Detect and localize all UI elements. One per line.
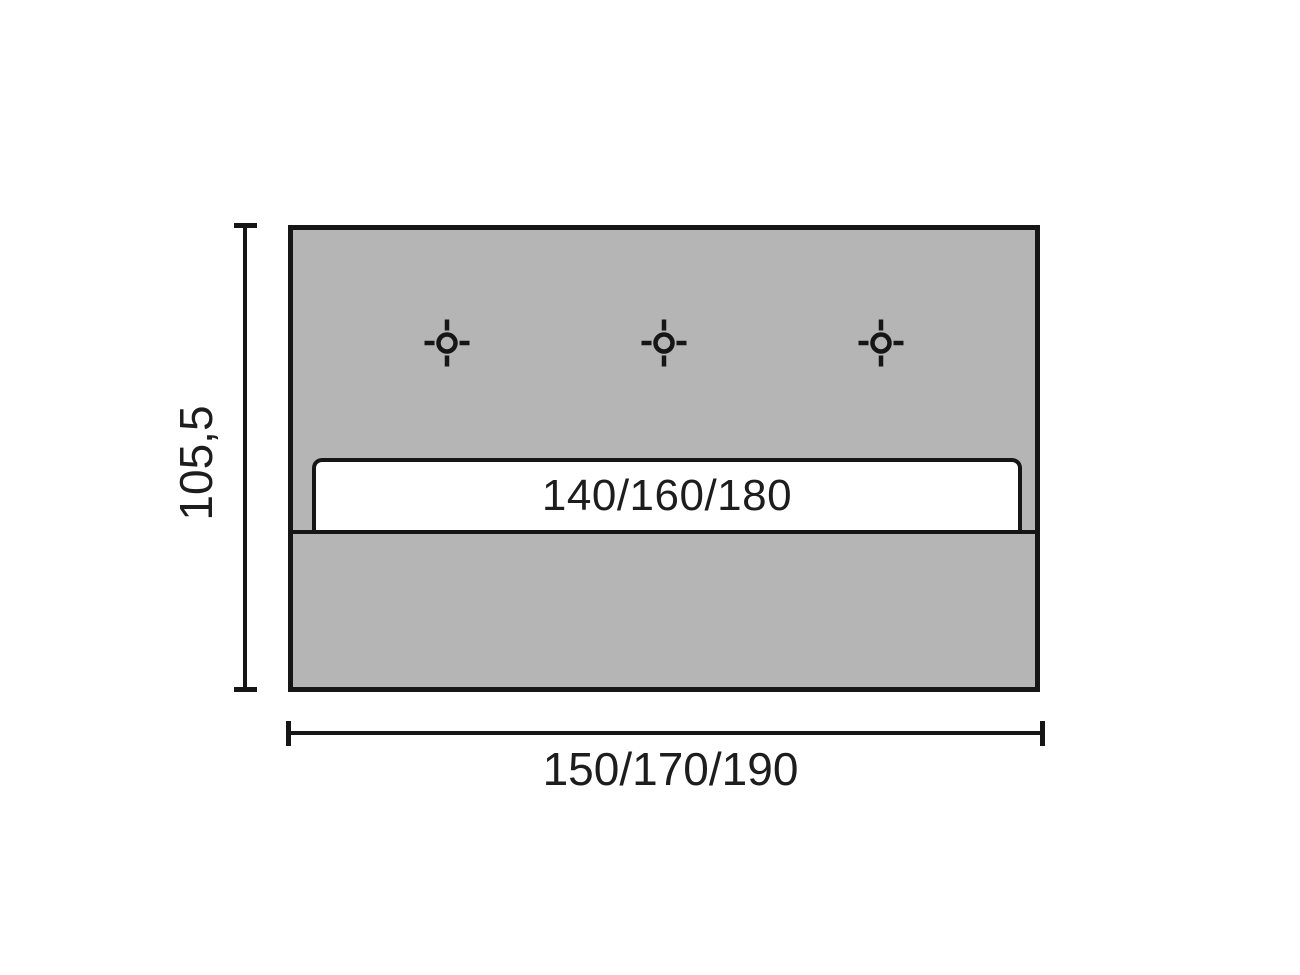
drill-hole-marker <box>857 318 905 368</box>
height-dimension-line <box>243 225 247 691</box>
drill-hole-marker <box>640 318 688 368</box>
height-dimension-tick-bottom <box>234 687 257 692</box>
crosshair-icon <box>640 318 688 368</box>
height-dimension-label: 105,5 <box>169 405 223 520</box>
insert-slat: 140/160/180 <box>312 458 1022 534</box>
crosshair-icon <box>857 318 905 368</box>
width-dimension-line <box>288 731 1043 735</box>
dimension-drawing: 140/160/180 105,5 150/170/190 <box>0 0 1300 975</box>
insert-size-label: 140/160/180 <box>542 471 792 521</box>
height-dimension-tick-top <box>234 223 257 228</box>
width-dimension-label: 150/170/190 <box>288 742 1053 796</box>
drill-hole-marker <box>423 318 471 368</box>
crosshair-icon <box>423 318 471 368</box>
